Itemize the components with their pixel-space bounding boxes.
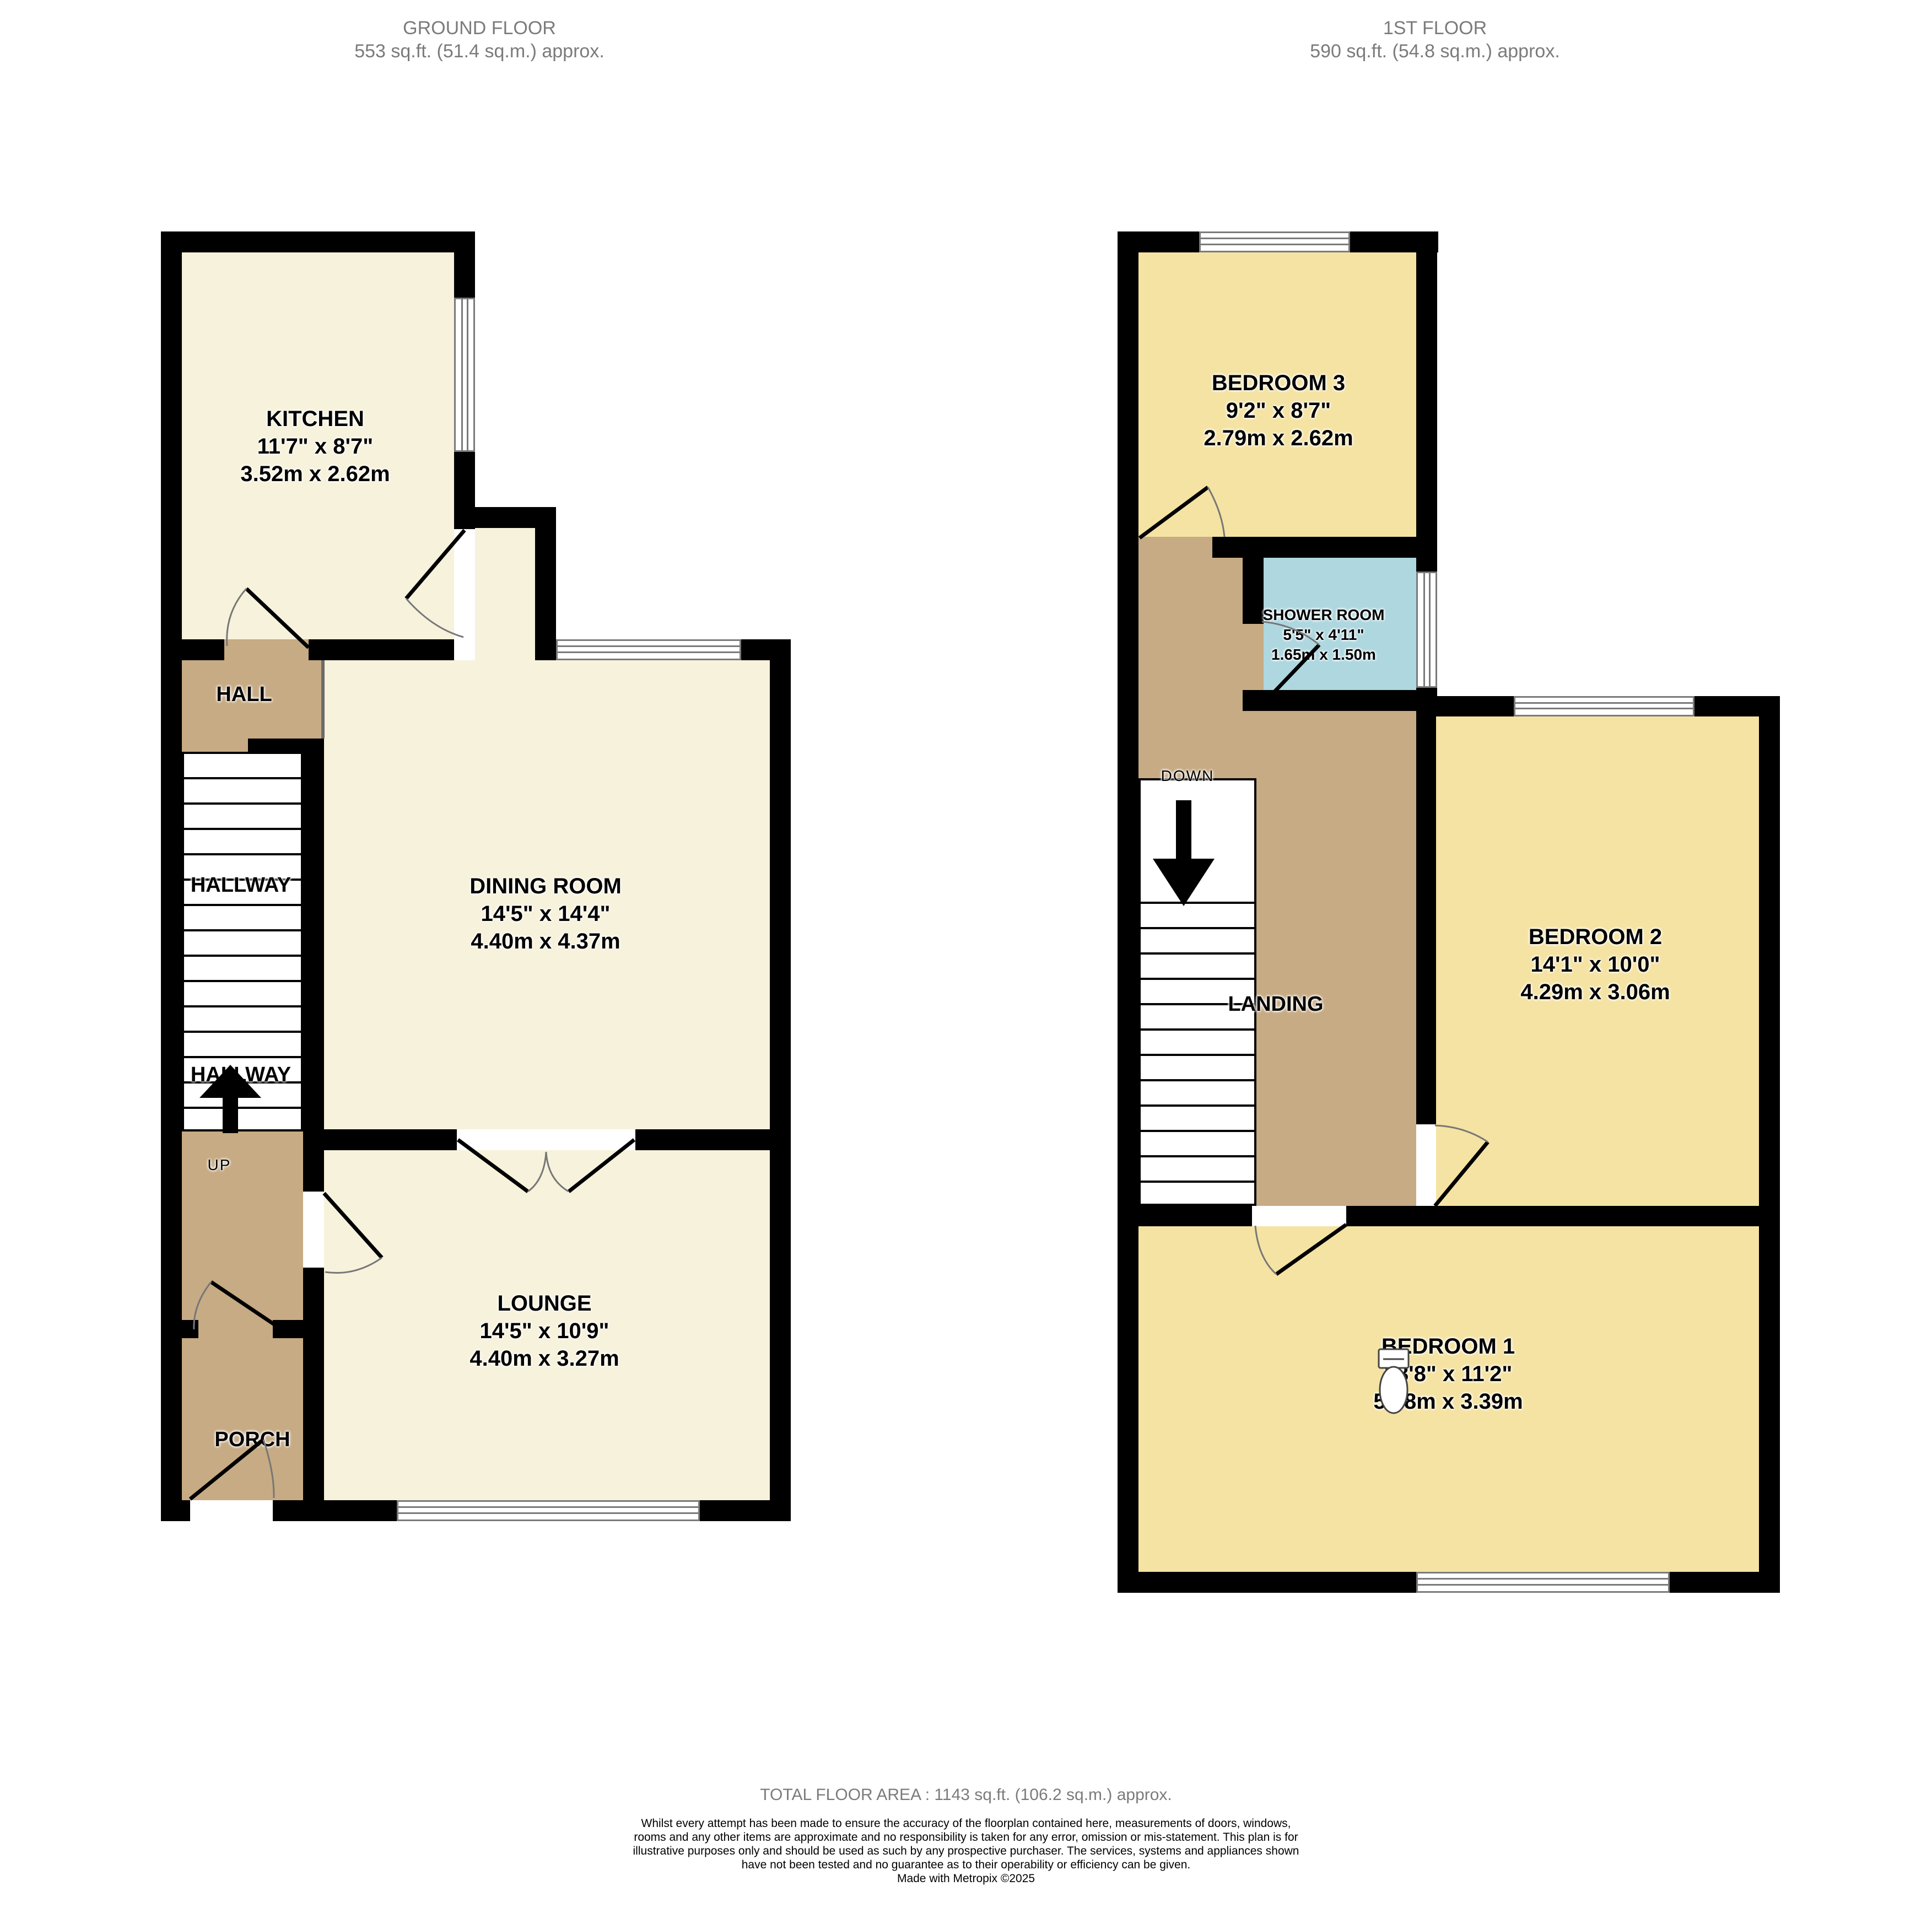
first-staircase [1138, 902, 1256, 1206]
wall [1416, 546, 1437, 572]
shower-label: SHOWER ROOM 5'5" x 4'11" 1.65m x 1.50m [1235, 605, 1412, 665]
kitchen-label: KITCHEN 11'7" x 8'7" 3.52m x 2.62m [177, 405, 453, 488]
bedroom3-metric: 2.79m x 2.62m [1141, 424, 1416, 452]
bedroom3-window [1199, 231, 1350, 252]
wall [273, 1320, 324, 1338]
down-label: DOWN [1152, 767, 1223, 785]
bedroom1-imperial: 18'8" x 11'2" [1272, 1360, 1625, 1388]
wall [454, 231, 475, 298]
wall [1118, 231, 1138, 1593]
disclaimer-text: Whilst every attempt has been made to en… [632, 1817, 1301, 1872]
ground-floor-header: GROUND FLOOR 553 sq.ft. (51.4 sq.m.) app… [204, 17, 755, 63]
bedroom1-label: BEDROOM 1 18'8" x 11'2" 5.68m x 3.39m [1272, 1333, 1625, 1415]
bedroom2-metric: 4.29m x 3.06m [1419, 978, 1772, 1006]
bedroom3-name: BEDROOM 3 [1141, 369, 1416, 397]
wall [1243, 690, 1436, 711]
hallway-upper-label: HALLWAY [164, 873, 318, 897]
hall-dining-divider [321, 660, 325, 739]
bedroom1-name: BEDROOM 1 [1272, 1333, 1625, 1360]
first-floor-header: 1ST FLOOR 590 sq.ft. (54.8 sq.m.) approx… [1159, 17, 1710, 63]
disclaimer-block: Whilst every attempt has been made to en… [632, 1817, 1301, 1885]
shower-metric: 1.65m x 1.50m [1235, 645, 1412, 665]
lounge-name: LOUNGE [368, 1290, 721, 1317]
lounge-metric: 4.40m x 3.27m [368, 1345, 721, 1372]
kitchen-imperial: 11'7" x 8'7" [177, 433, 453, 460]
bedroom2-window [1514, 696, 1694, 716]
floorplan-page: { "colors": { "cream": "#F7F2DB", "yello… [0, 0, 1932, 1913]
dining-window [556, 639, 741, 660]
wall [1670, 1572, 1780, 1593]
shower-window [1416, 572, 1437, 688]
wall [309, 639, 454, 660]
bedroom3-label: BEDROOM 3 9'2" x 8'7" 2.79m x 2.62m [1141, 369, 1416, 452]
lounge-window [397, 1500, 700, 1521]
metropix-credit: Made with Metropix ©2025 [632, 1872, 1301, 1885]
shower-imperial: 5'5" x 4'11" [1235, 625, 1412, 645]
dining-imperial: 14'5" x 14'4" [369, 900, 722, 928]
porch-label: PORCH [181, 1427, 324, 1452]
wall [248, 739, 324, 754]
bedroom2-label: BEDROOM 2 14'1" x 10'0" 4.29m x 3.06m [1419, 923, 1772, 1006]
wall [770, 639, 791, 1521]
wall [161, 1320, 198, 1338]
first-staircase-top [1138, 778, 1256, 904]
total-floor-area: TOTAL FLOOR AREA : 1143 sq.ft. (106.2 sq… [760, 1786, 1172, 1804]
dining-label: DINING ROOM 14'5" x 14'4" 4.40m x 4.37m [369, 872, 722, 955]
bedroom3-imperial: 9'2" x 8'7" [1141, 397, 1416, 424]
wall [303, 1338, 324, 1500]
lounge-label: LOUNGE 14'5" x 10'9" 4.40m x 3.27m [368, 1290, 721, 1372]
kitchen-window [454, 298, 475, 452]
kitchen-name: KITCHEN [177, 405, 453, 433]
wall [1212, 537, 1436, 558]
bedroom2-name: BEDROOM 2 [1419, 923, 1772, 951]
bedroom1-window [1416, 1572, 1670, 1593]
dining-metric: 4.40m x 4.37m [369, 928, 722, 955]
wall [182, 639, 224, 660]
bedroom2-imperial: 14'1" x 10'0" [1419, 951, 1772, 978]
hallway-lower-label: HALLWAY [164, 1063, 318, 1087]
wall [635, 1129, 770, 1150]
first-floor-title: 1ST FLOOR [1159, 17, 1710, 40]
wall [161, 231, 475, 252]
bedroom1-metric: 5.68m x 3.39m [1272, 1388, 1625, 1415]
wall [161, 1500, 190, 1521]
first-floor-area: 590 sq.ft. (54.8 sq.m.) approx. [1159, 40, 1710, 63]
wall [303, 1268, 324, 1320]
shower-name: SHOWER ROOM [1235, 605, 1412, 625]
dining-name: DINING ROOM [369, 872, 722, 900]
kitchen-metric: 3.52m x 2.62m [177, 460, 453, 488]
wall [535, 507, 556, 660]
lounge-imperial: 14'5" x 10'9" [368, 1317, 721, 1345]
ground-floor-title: GROUND FLOOR [204, 17, 755, 40]
wall [1759, 696, 1780, 1593]
wall [273, 1500, 397, 1521]
wall [1416, 231, 1437, 546]
wall [1138, 1206, 1252, 1226]
wall [700, 1500, 791, 1521]
wall [1416, 711, 1436, 1124]
landing-label: LANDING [1199, 992, 1353, 1016]
wall [1346, 1206, 1759, 1226]
up-label: UP [186, 1156, 252, 1174]
kitchen-dining-passage [475, 528, 535, 660]
ground-floor-area: 553 sq.ft. (51.4 sq.m.) approx. [204, 40, 755, 63]
wall [303, 1129, 457, 1150]
wall [303, 1150, 324, 1192]
wall [1118, 1572, 1416, 1593]
hall-label: HALL [172, 682, 316, 707]
